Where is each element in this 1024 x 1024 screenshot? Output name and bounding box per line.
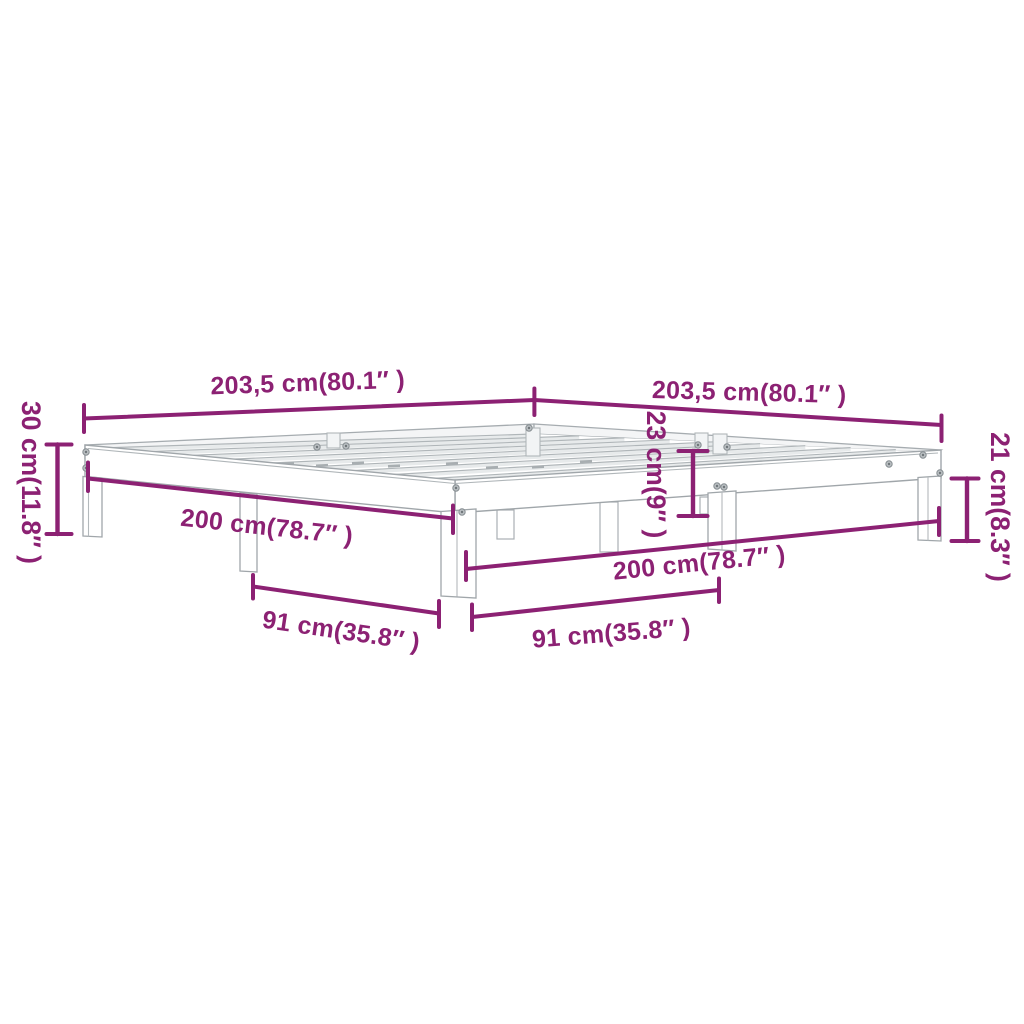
svg-text:30 cm(11.8″ ): 30 cm(11.8″ ) bbox=[16, 401, 46, 564]
svg-text:21 cm(8.3″ ): 21 cm(8.3″ ) bbox=[985, 432, 1015, 582]
svg-text:23 cm(9″ ): 23 cm(9″ ) bbox=[641, 411, 671, 539]
svg-text:203,5 cm(80.1″ ): 203,5 cm(80.1″ ) bbox=[652, 376, 847, 409]
